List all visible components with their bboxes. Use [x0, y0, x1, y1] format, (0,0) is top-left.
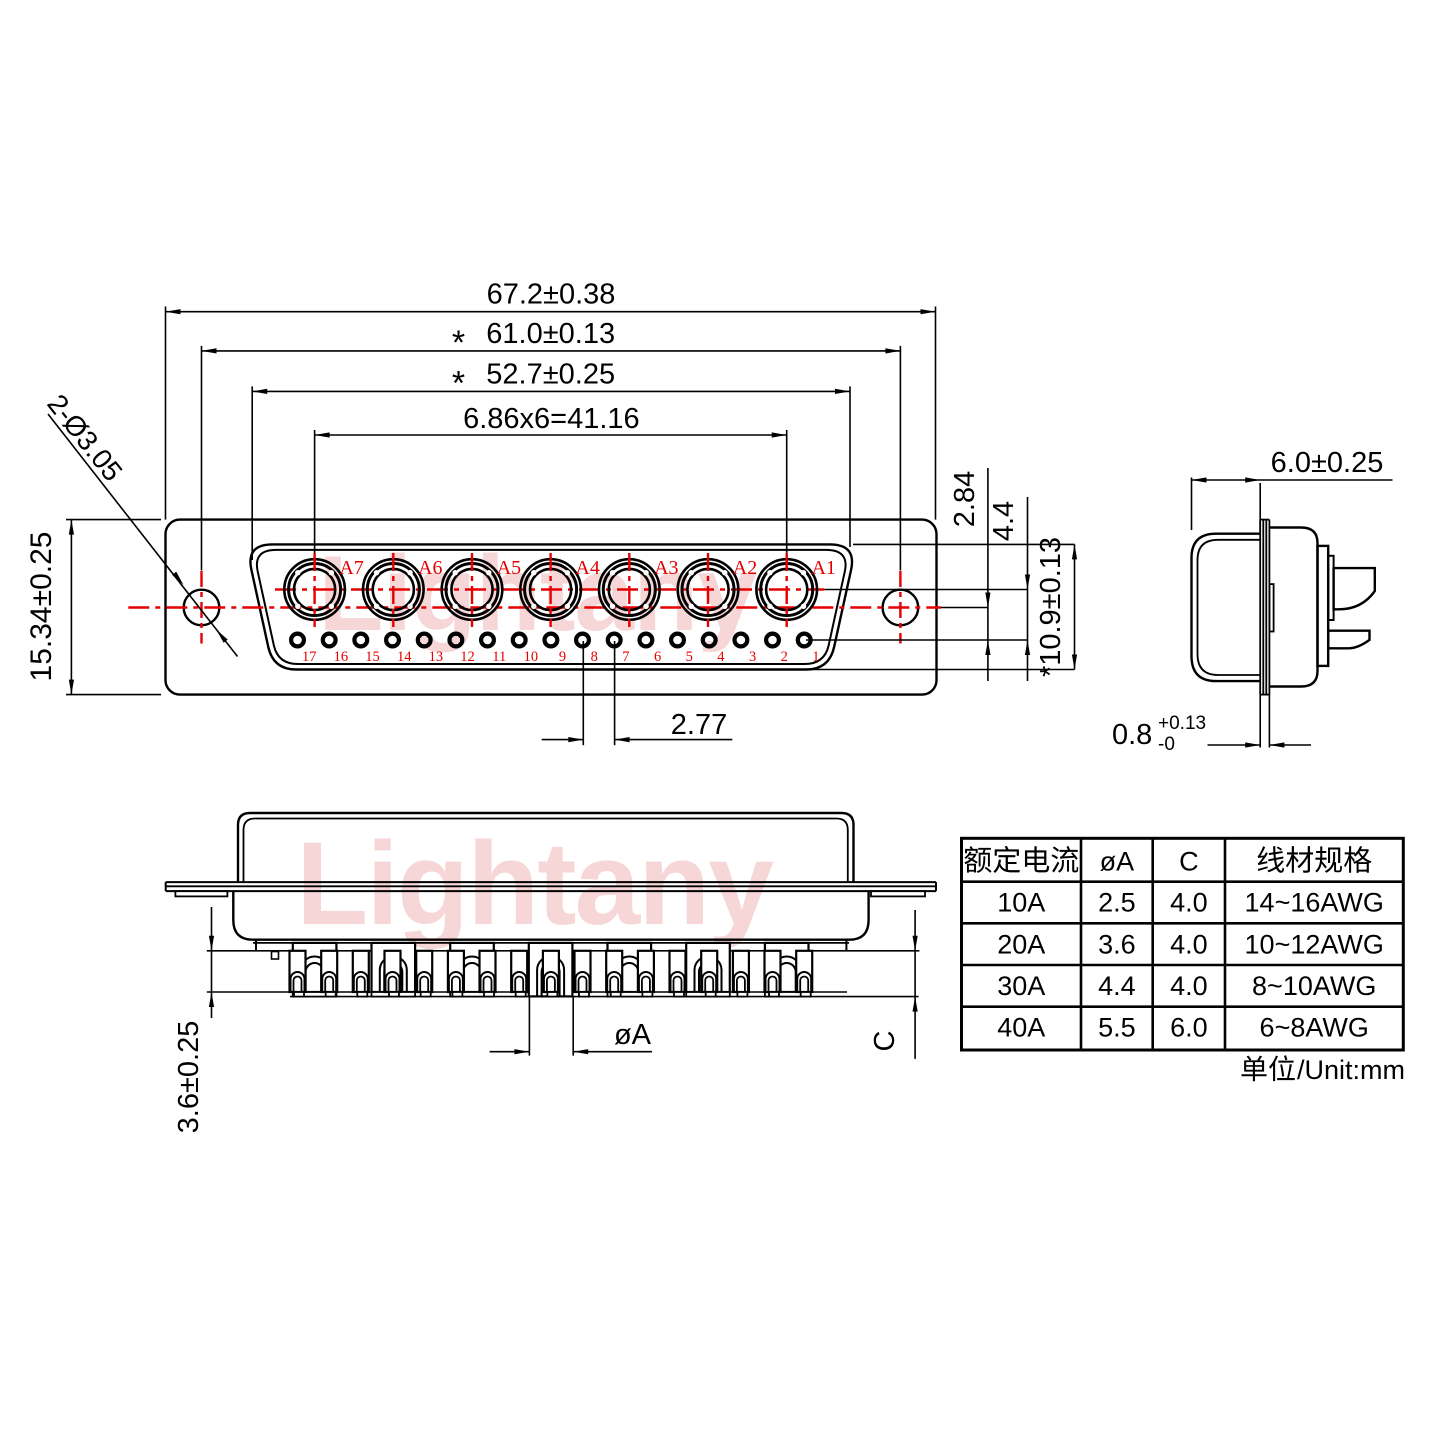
svg-text:20A: 20A [997, 929, 1045, 959]
svg-text:61.0±0.13: 61.0±0.13 [486, 318, 615, 350]
svg-text:6: 6 [654, 649, 661, 665]
svg-text:4.0: 4.0 [1170, 888, 1208, 918]
svg-text:4.4: 4.4 [988, 501, 1020, 541]
svg-text:A1: A1 [811, 557, 835, 579]
svg-text:A2: A2 [733, 557, 757, 579]
svg-text:9: 9 [559, 649, 566, 665]
svg-text:A3: A3 [654, 557, 678, 579]
svg-text:14~16AWG: 14~16AWG [1245, 888, 1384, 918]
svg-text:*: * [452, 365, 465, 403]
svg-text:1: 1 [812, 649, 819, 665]
svg-text:3.6: 3.6 [1098, 929, 1136, 959]
svg-text:16: 16 [334, 649, 349, 665]
svg-text:0.8: 0.8 [1112, 719, 1152, 751]
svg-text:11: 11 [492, 649, 506, 665]
svg-text:5.5: 5.5 [1098, 1013, 1136, 1043]
svg-text:7: 7 [622, 649, 629, 665]
svg-text:A7: A7 [339, 557, 363, 579]
svg-text:A6: A6 [418, 557, 442, 579]
svg-text:10: 10 [524, 649, 539, 665]
svg-text:2.84: 2.84 [949, 471, 981, 527]
svg-text:4.4: 4.4 [1098, 971, 1136, 1001]
svg-text:6.86x6=41.16: 6.86x6=41.16 [463, 403, 640, 435]
svg-text:Lightany: Lightany [296, 818, 773, 950]
svg-text:2: 2 [781, 649, 788, 665]
svg-text:2.77: 2.77 [671, 709, 727, 741]
svg-text:10~12AWG: 10~12AWG [1245, 929, 1384, 959]
svg-text:14: 14 [397, 649, 412, 665]
svg-text:52.7±0.25: 52.7±0.25 [486, 358, 615, 390]
svg-text:12: 12 [460, 649, 475, 665]
svg-text:2.5: 2.5 [1098, 888, 1136, 918]
svg-text:6.0±0.25: 6.0±0.25 [1271, 447, 1384, 479]
svg-text:3.6±0.25: 3.6±0.25 [173, 1021, 205, 1134]
svg-text:+0.13: +0.13 [1158, 713, 1206, 734]
svg-text:6~8AWG: 6~8AWG [1260, 1013, 1369, 1043]
svg-text:15.34±0.25: 15.34±0.25 [25, 532, 58, 682]
svg-text:10A: 10A [997, 888, 1045, 918]
svg-text:øA: øA [614, 1019, 652, 1051]
svg-text:*: * [452, 324, 465, 362]
svg-text:*10.9±0.13: *10.9±0.13 [1035, 537, 1067, 677]
svg-text:15: 15 [365, 649, 380, 665]
svg-text:6.0: 6.0 [1170, 1013, 1208, 1043]
svg-text:A5: A5 [497, 557, 521, 579]
svg-text:8~10AWG: 8~10AWG [1252, 971, 1376, 1001]
svg-text:4.0: 4.0 [1170, 971, 1208, 1001]
svg-text:4.0: 4.0 [1170, 929, 1208, 959]
svg-text:17: 17 [302, 649, 317, 665]
svg-text:Lightany: Lightany [318, 533, 756, 653]
svg-text:-0: -0 [1158, 734, 1175, 755]
svg-text:67.2±0.38: 67.2±0.38 [487, 279, 616, 311]
svg-text:/Unit:mm: /Unit:mm [1297, 1055, 1405, 1085]
svg-text:A4: A4 [575, 557, 599, 579]
svg-text:C: C [869, 1031, 901, 1052]
svg-text:8: 8 [591, 649, 598, 665]
svg-text:13: 13 [429, 649, 444, 665]
svg-text:40A: 40A [997, 1013, 1045, 1043]
svg-text:30A: 30A [997, 971, 1045, 1001]
svg-text:5: 5 [686, 649, 693, 665]
svg-text:øA: øA [1100, 847, 1135, 877]
svg-text:C: C [1179, 847, 1199, 877]
svg-text:4: 4 [717, 649, 725, 665]
svg-text:3: 3 [749, 649, 756, 665]
